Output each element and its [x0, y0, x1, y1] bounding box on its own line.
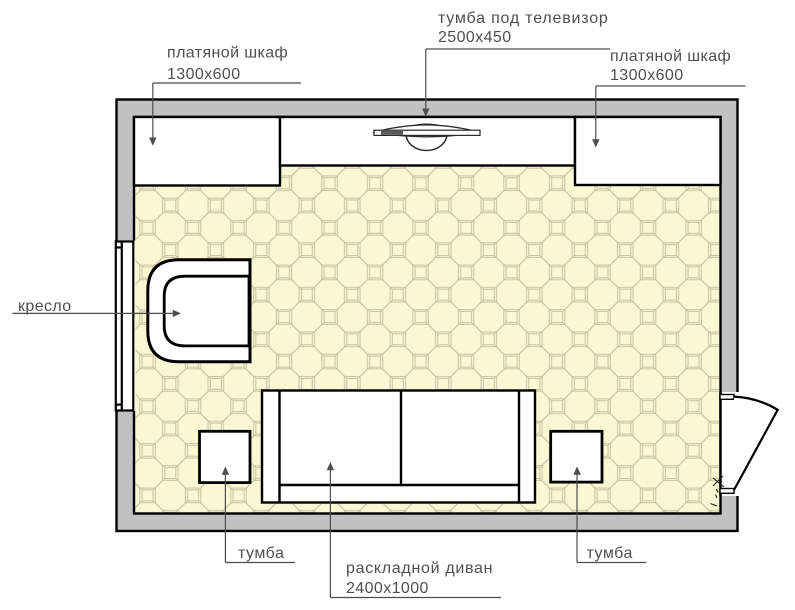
- svg-text:кресло: кресло: [18, 298, 72, 315]
- svg-text:тумба: тумба: [238, 545, 284, 562]
- svg-text:тумба под телевизор: тумба под телевизор: [438, 10, 609, 27]
- svg-text:2500x450: 2500x450: [438, 29, 512, 46]
- svg-text:платяной шкаф: платяной шкаф: [167, 45, 288, 62]
- svg-text:2400x1000: 2400x1000: [346, 580, 429, 597]
- svg-text:1300x600: 1300x600: [167, 66, 241, 83]
- svg-text:раскладной диван: раскладной диван: [346, 560, 493, 577]
- svg-text:тумба: тумба: [587, 545, 633, 562]
- svg-text:1300x600: 1300x600: [610, 67, 684, 84]
- svg-text:платяной шкаф: платяной шкаф: [610, 48, 731, 65]
